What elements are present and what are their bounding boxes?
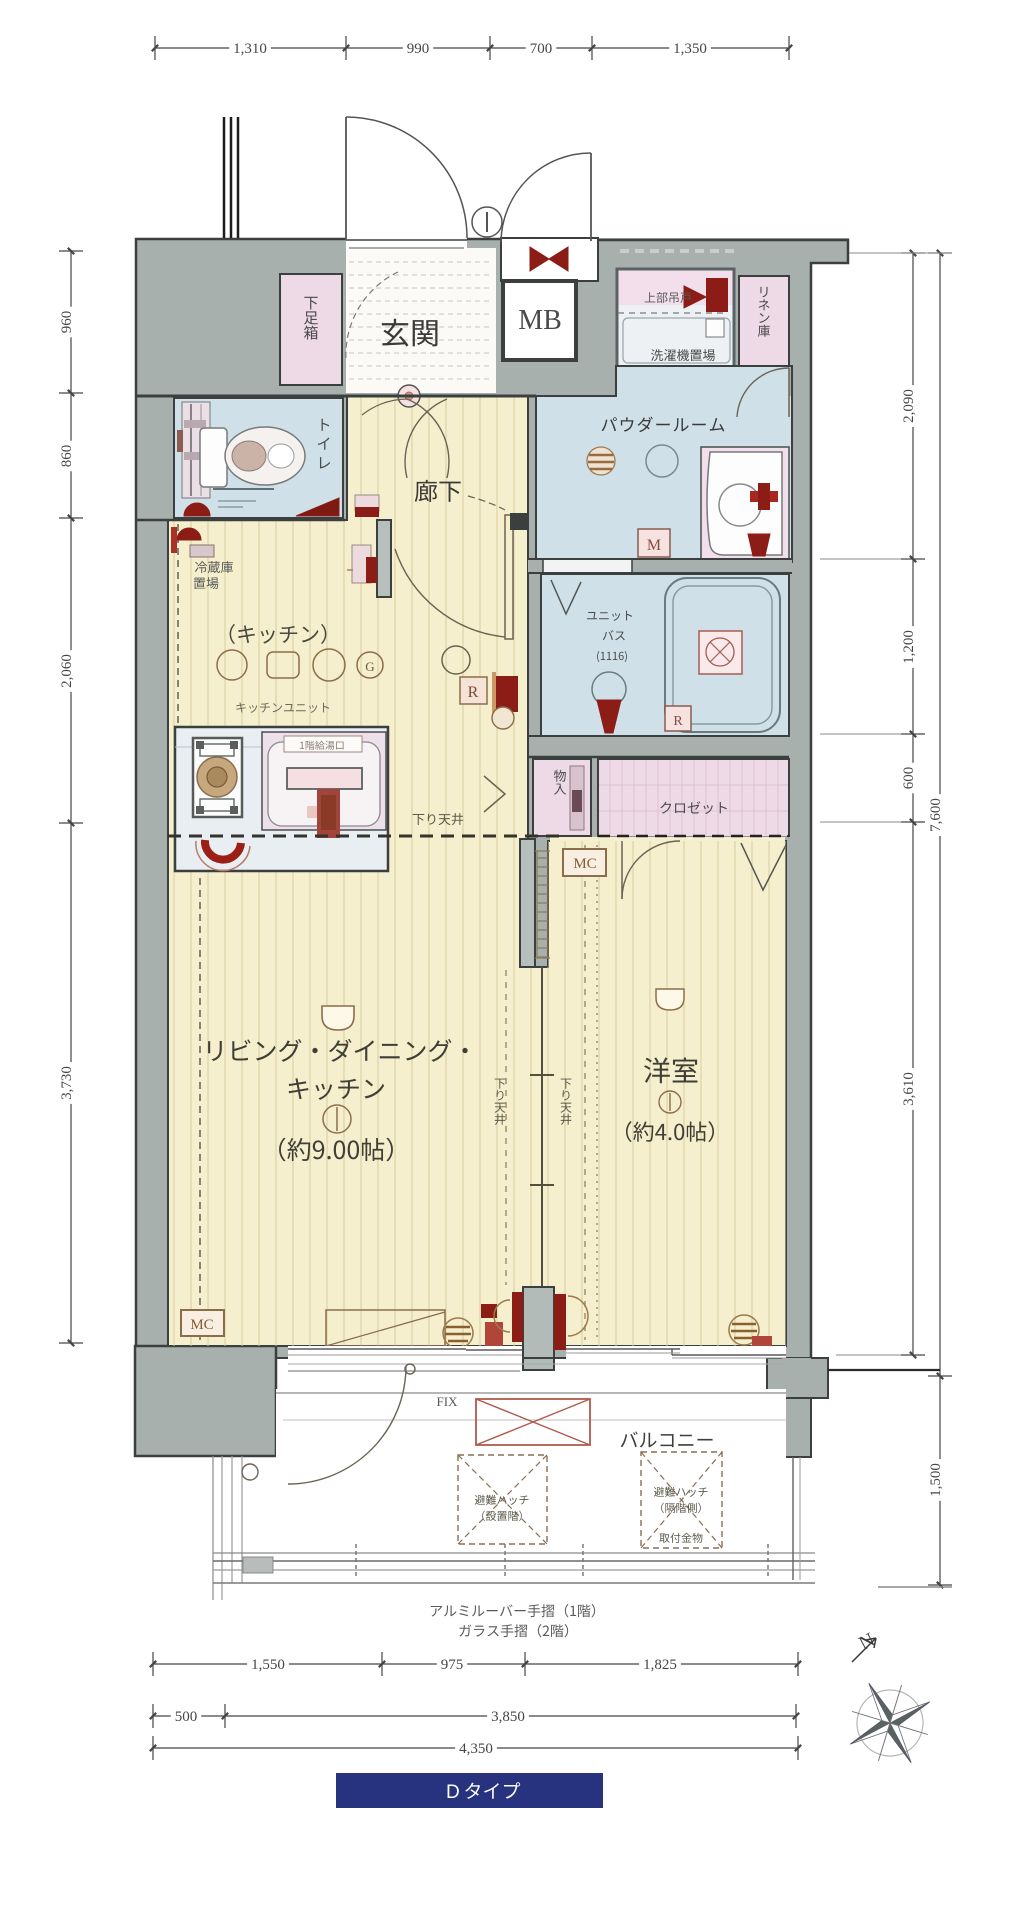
svg-text:600: 600 <box>901 767 917 790</box>
svg-text:MB: MB <box>518 305 562 336</box>
svg-text:1,310: 1,310 <box>233 41 267 57</box>
svg-text:1,825: 1,825 <box>643 1657 677 1673</box>
svg-text:FIX: FIX <box>437 1394 459 1409</box>
svg-text:2,060: 2,060 <box>59 654 75 688</box>
svg-text:2,090: 2,090 <box>901 389 917 423</box>
svg-text:700: 700 <box>530 41 553 57</box>
svg-text:960: 960 <box>59 311 75 334</box>
svg-text:975: 975 <box>441 1657 464 1673</box>
svg-text:3,730: 3,730 <box>59 1066 75 1100</box>
svg-text:R: R <box>468 684 479 701</box>
svg-text:1,350: 1,350 <box>673 41 707 57</box>
svg-text:990: 990 <box>407 41 430 57</box>
svg-text:G: G <box>365 659 374 674</box>
svg-text:1,550: 1,550 <box>251 1657 285 1673</box>
svg-text:3,850: 3,850 <box>491 1709 525 1725</box>
svg-text:M: M <box>647 537 661 554</box>
svg-text:3,610: 3,610 <box>901 1072 917 1106</box>
svg-text:860: 860 <box>59 445 75 468</box>
svg-text:4,350: 4,350 <box>459 1741 493 1757</box>
svg-text:1,200: 1,200 <box>901 630 917 664</box>
svg-text:1,500: 1,500 <box>928 1463 944 1497</box>
svg-text:500: 500 <box>175 1709 198 1725</box>
svg-text:MC: MC <box>190 1317 213 1333</box>
svg-text:R: R <box>673 714 683 729</box>
svg-text:7,600: 7,600 <box>928 798 944 832</box>
svg-text:D: D <box>446 1782 460 1803</box>
svg-text:MC: MC <box>573 856 596 872</box>
